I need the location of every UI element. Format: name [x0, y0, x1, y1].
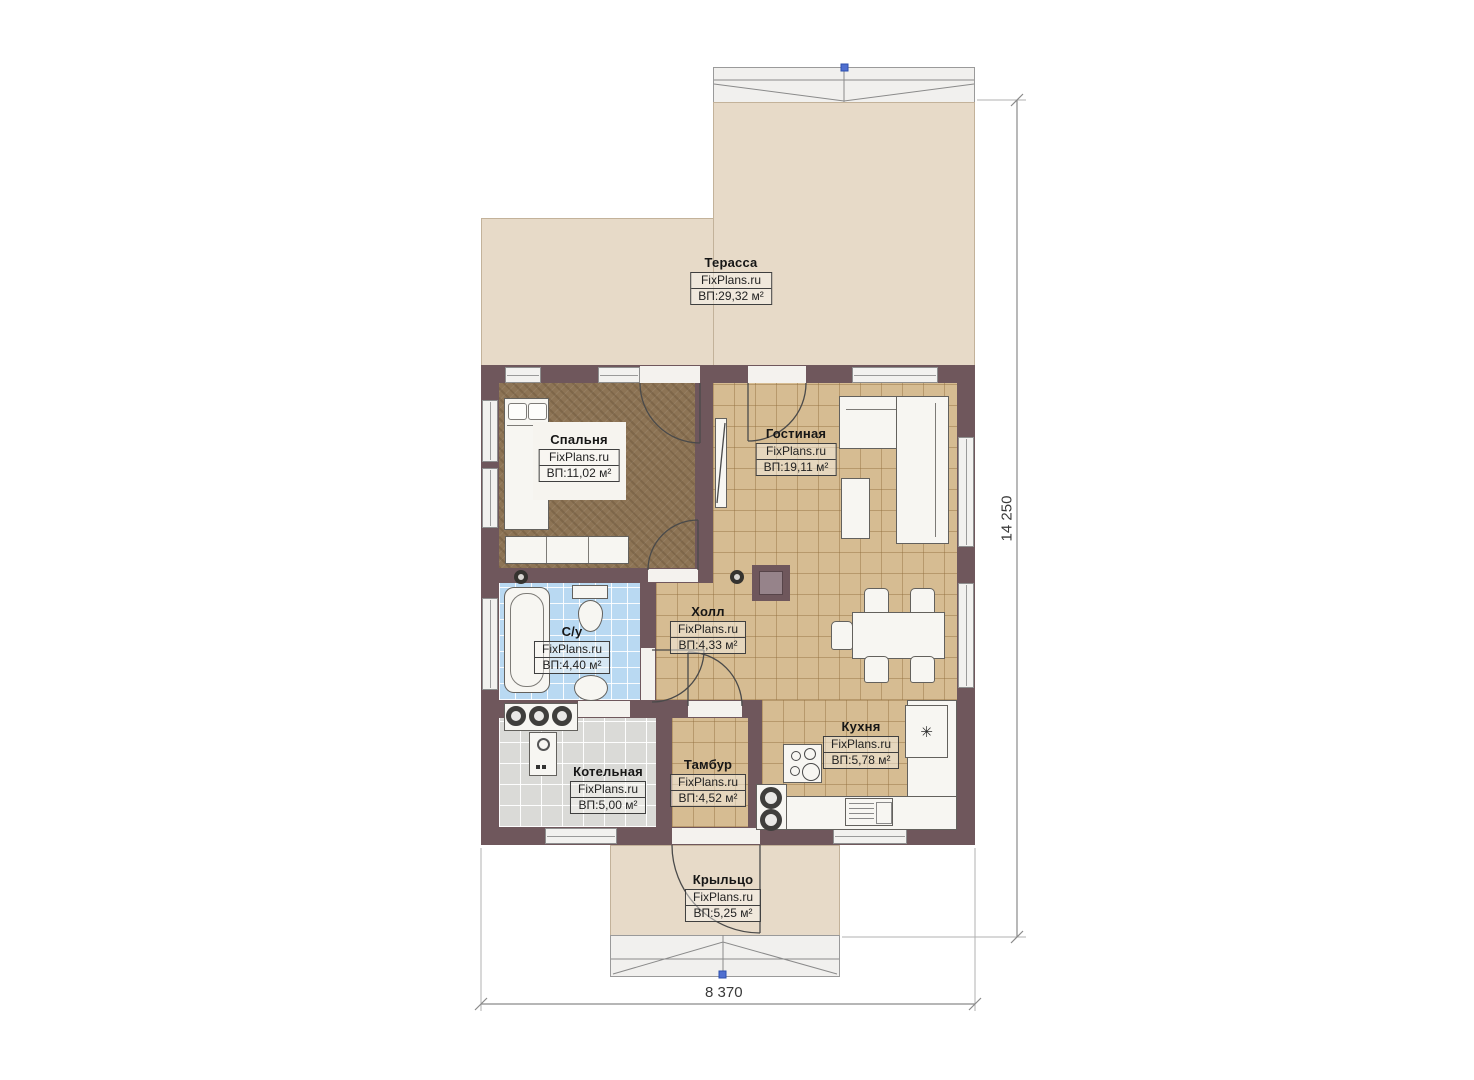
terrace-floor-right	[713, 102, 975, 366]
terrace-floor-left	[481, 218, 714, 366]
room-name: Спальня	[539, 432, 620, 447]
boiler-tank	[506, 706, 526, 726]
room-label-bedroom: Спальня FixPlans.ru ВП:11,02 м²	[539, 432, 620, 482]
boiler-dial	[537, 738, 550, 751]
door-opening-terrace-bedroom	[640, 366, 700, 383]
window-living-north	[852, 367, 938, 383]
room-label-porch: Крыльцо FixPlans.ru ВП:5,25 м²	[685, 872, 761, 922]
window-bedroom-north-2	[598, 367, 640, 383]
kitchen-sink-bowl	[760, 787, 782, 809]
fridge: ✳	[905, 705, 948, 758]
vent-pipe	[730, 570, 744, 584]
boiler-tank	[552, 706, 572, 726]
window-boiler-south	[545, 828, 617, 844]
tv-unit	[715, 418, 727, 508]
door-opening-terrace-living	[748, 366, 806, 383]
room-brand: FixPlans.ru	[535, 642, 609, 657]
vent-pipe	[514, 570, 528, 584]
door-opening-hall-vestibule	[688, 701, 742, 717]
room-label-bathroom: С/у FixPlans.ru ВП:4,40 м²	[534, 624, 610, 674]
boiler-unit	[529, 732, 557, 776]
dimension-width-value: 8 370	[705, 984, 743, 1001]
room-area: ВП:4,33 м²	[671, 637, 745, 653]
dresser-divider	[546, 537, 547, 563]
room-label-living: Гостиная FixPlans.ru ВП:19,11 м²	[756, 426, 837, 476]
wall-bedroom-living	[695, 383, 713, 568]
door-opening-hall-bathroom	[641, 648, 655, 700]
floor-plan: ✳	[0, 0, 1474, 1080]
terrace-steps	[713, 67, 975, 103]
window-bathroom-west	[482, 598, 498, 690]
window-bedroom-west-1	[482, 400, 498, 462]
coffee-table	[841, 478, 870, 539]
room-brand: FixPlans.ru	[686, 890, 760, 905]
room-area: ВП:29,32 м²	[691, 288, 771, 304]
bedroom-dresser	[505, 536, 629, 564]
kitchen-sink-bowl	[760, 809, 782, 831]
room-info-box: FixPlans.ru ВП:5,78 м²	[823, 736, 899, 769]
window-living-east	[958, 437, 974, 547]
porch-steps	[610, 935, 840, 977]
room-info-box: FixPlans.ru ВП:19,11 м²	[756, 443, 837, 476]
room-area: ВП:19,11 м²	[757, 459, 836, 475]
room-info-box: FixPlans.ru ВП:29,32 м²	[690, 272, 772, 305]
room-area: ВП:5,78 м²	[824, 752, 898, 768]
room-label-hall: Холл FixPlans.ru ВП:4,33 м²	[670, 604, 746, 654]
room-brand: FixPlans.ru	[824, 737, 898, 752]
room-label-kitchen: Кухня FixPlans.ru ВП:5,78 м²	[823, 719, 899, 769]
room-area: ВП:11,02 м²	[540, 465, 619, 481]
room-label-terrace: Терасса FixPlans.ru ВП:29,32 м²	[690, 255, 772, 305]
dishwasher-door	[876, 802, 892, 824]
room-brand: FixPlans.ru	[671, 622, 745, 637]
door-opening-hall-boiler	[578, 701, 630, 717]
room-info-box: FixPlans.ru ВП:5,00 м²	[570, 781, 646, 814]
room-name: Гостиная	[756, 426, 837, 441]
room-name: Котельная	[570, 764, 646, 779]
cooktop-burner	[804, 748, 816, 760]
room-name: Терасса	[690, 255, 772, 270]
room-info-box: FixPlans.ru ВП:4,52 м²	[670, 774, 746, 807]
room-area: ВП:5,00 м²	[571, 797, 645, 813]
dining-chair	[831, 621, 853, 650]
room-area: ВП:4,52 м²	[671, 790, 745, 806]
sofa-vertical-section	[896, 396, 949, 544]
room-name: Крыльцо	[685, 872, 761, 887]
room-info-box: FixPlans.ru ВП:4,33 м²	[670, 621, 746, 654]
room-name: Кухня	[823, 719, 899, 734]
room-brand: FixPlans.ru	[571, 782, 645, 797]
dining-chair	[910, 656, 935, 683]
room-label-boiler: Котельная FixPlans.ru ВП:5,00 м²	[570, 764, 646, 814]
window-dining-east	[958, 583, 974, 688]
bed-pillow	[528, 403, 547, 420]
cooktop-burner	[791, 751, 801, 761]
dining-chair	[864, 588, 889, 615]
cooktop-burner	[802, 763, 820, 781]
dimension-label-width: 8 370	[705, 984, 743, 1001]
room-brand: FixPlans.ru	[540, 450, 619, 465]
dimension-label-height: 14 250	[998, 496, 1015, 542]
bathroom-sink	[574, 675, 608, 701]
chimney-flue	[759, 571, 783, 595]
room-area: ВП:4,40 м²	[535, 657, 609, 673]
cooktop	[783, 744, 822, 783]
room-info-box: FixPlans.ru ВП:5,25 м²	[685, 889, 761, 922]
toilet-tank	[572, 585, 608, 599]
door-opening-vestibule-porch	[672, 828, 760, 844]
room-brand: FixPlans.ru	[671, 775, 745, 790]
cooktop-burner	[790, 766, 800, 776]
window-bedroom-west-2	[482, 468, 498, 528]
dresser-divider	[588, 537, 589, 563]
fridge-star-icon: ✳	[920, 723, 933, 741]
dining-table	[852, 612, 945, 659]
room-brand: FixPlans.ru	[757, 444, 836, 459]
dishwasher-vents	[849, 803, 874, 822]
dining-chair	[864, 656, 889, 683]
bed-pillow	[508, 403, 527, 420]
window-kitchen-south	[833, 828, 907, 844]
room-name: Холл	[670, 604, 746, 619]
room-info-box: FixPlans.ru ВП:4,40 м²	[534, 641, 610, 674]
door-opening-hall-bedroom	[648, 569, 698, 582]
dining-chair	[910, 588, 935, 615]
room-brand: FixPlans.ru	[691, 273, 771, 288]
dimension-height-value: 14 250	[998, 496, 1015, 542]
boiler-button	[542, 765, 546, 769]
room-name: С/у	[534, 624, 610, 639]
boiler-button	[536, 765, 540, 769]
room-info-box: FixPlans.ru ВП:11,02 м²	[539, 449, 620, 482]
room-name: Тамбур	[670, 757, 746, 772]
dishwasher	[845, 798, 893, 826]
window-bedroom-north-1	[505, 367, 541, 383]
room-label-vestibule: Тамбур FixPlans.ru ВП:4,52 м²	[670, 757, 746, 807]
room-area: ВП:5,25 м²	[686, 905, 760, 921]
boiler-tank	[529, 706, 549, 726]
